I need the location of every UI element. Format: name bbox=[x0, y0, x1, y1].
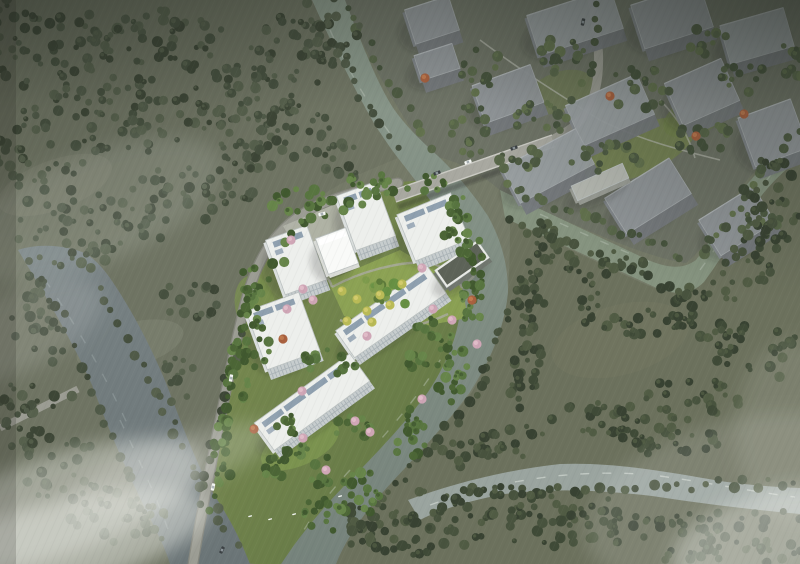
rendering-stage bbox=[0, 0, 800, 564]
corner-vignette-tl bbox=[0, 0, 360, 260]
left-edge-vignette bbox=[0, 0, 16, 564]
corner-vignette-tr bbox=[440, 0, 800, 300]
site-aerial-rendering bbox=[0, 0, 800, 564]
